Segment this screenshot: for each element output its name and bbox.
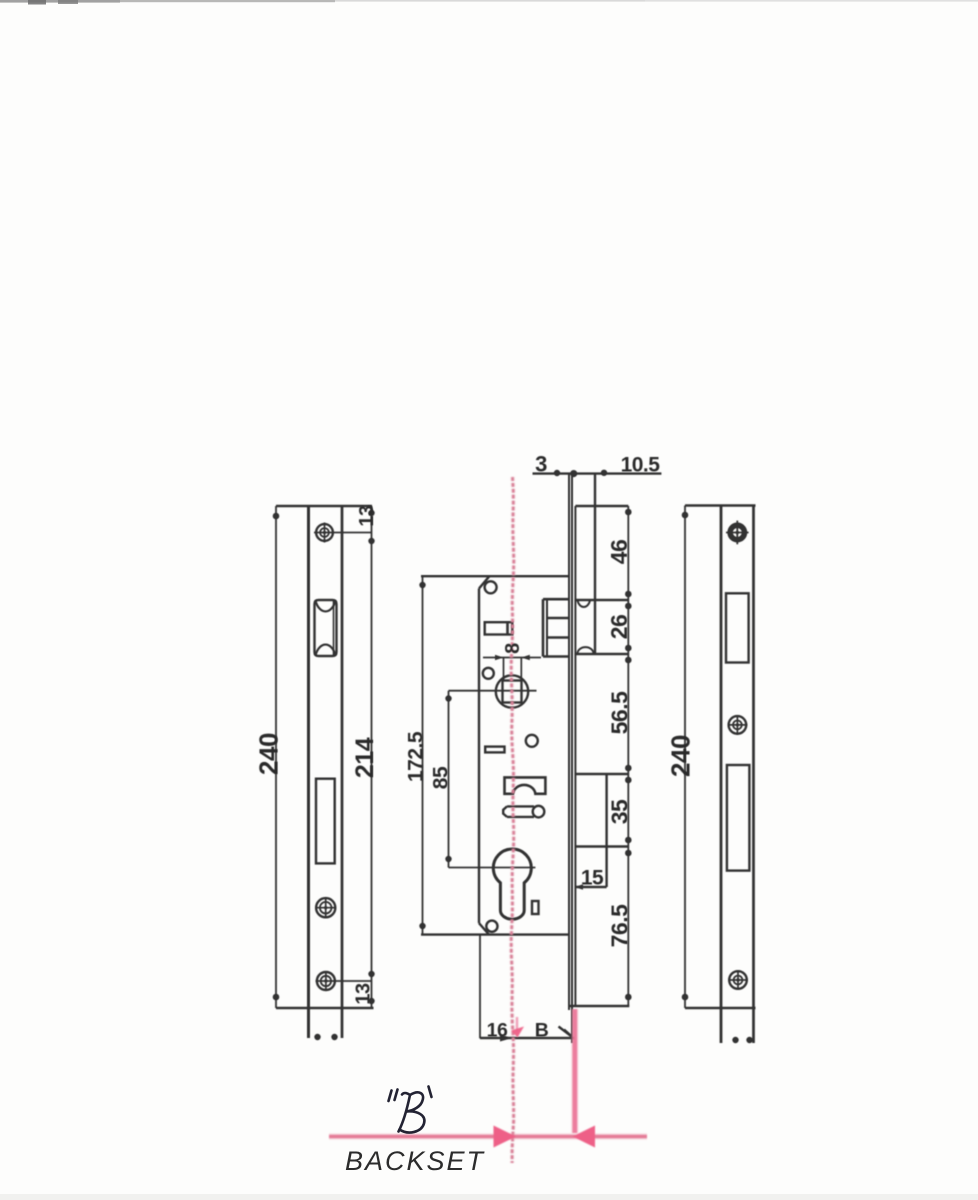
svg-text:172.5: 172.5 (404, 731, 427, 782)
svg-text:46: 46 (606, 540, 632, 565)
svg-text:10.5: 10.5 (621, 454, 661, 477)
svg-text:BACKSET: BACKSET (345, 1146, 486, 1176)
svg-text:B: B (535, 1020, 549, 1042)
svg-text:85: 85 (430, 766, 453, 789)
svg-text:13: 13 (352, 983, 374, 1005)
svg-text:240: 240 (253, 733, 283, 775)
svg-text:15: 15 (581, 867, 604, 890)
svg-text:35: 35 (606, 799, 632, 824)
svg-text:26: 26 (606, 615, 632, 640)
svg-text:56.5: 56.5 (606, 691, 632, 734)
svg-text:13: 13 (356, 505, 378, 527)
svg-text:8: 8 (502, 643, 524, 654)
svg-text:76.5: 76.5 (606, 904, 632, 947)
svg-text:3: 3 (535, 452, 547, 477)
svg-text:214: 214 (351, 737, 379, 778)
svg-text:16: 16 (487, 1020, 508, 1042)
svg-text:240: 240 (665, 735, 695, 777)
